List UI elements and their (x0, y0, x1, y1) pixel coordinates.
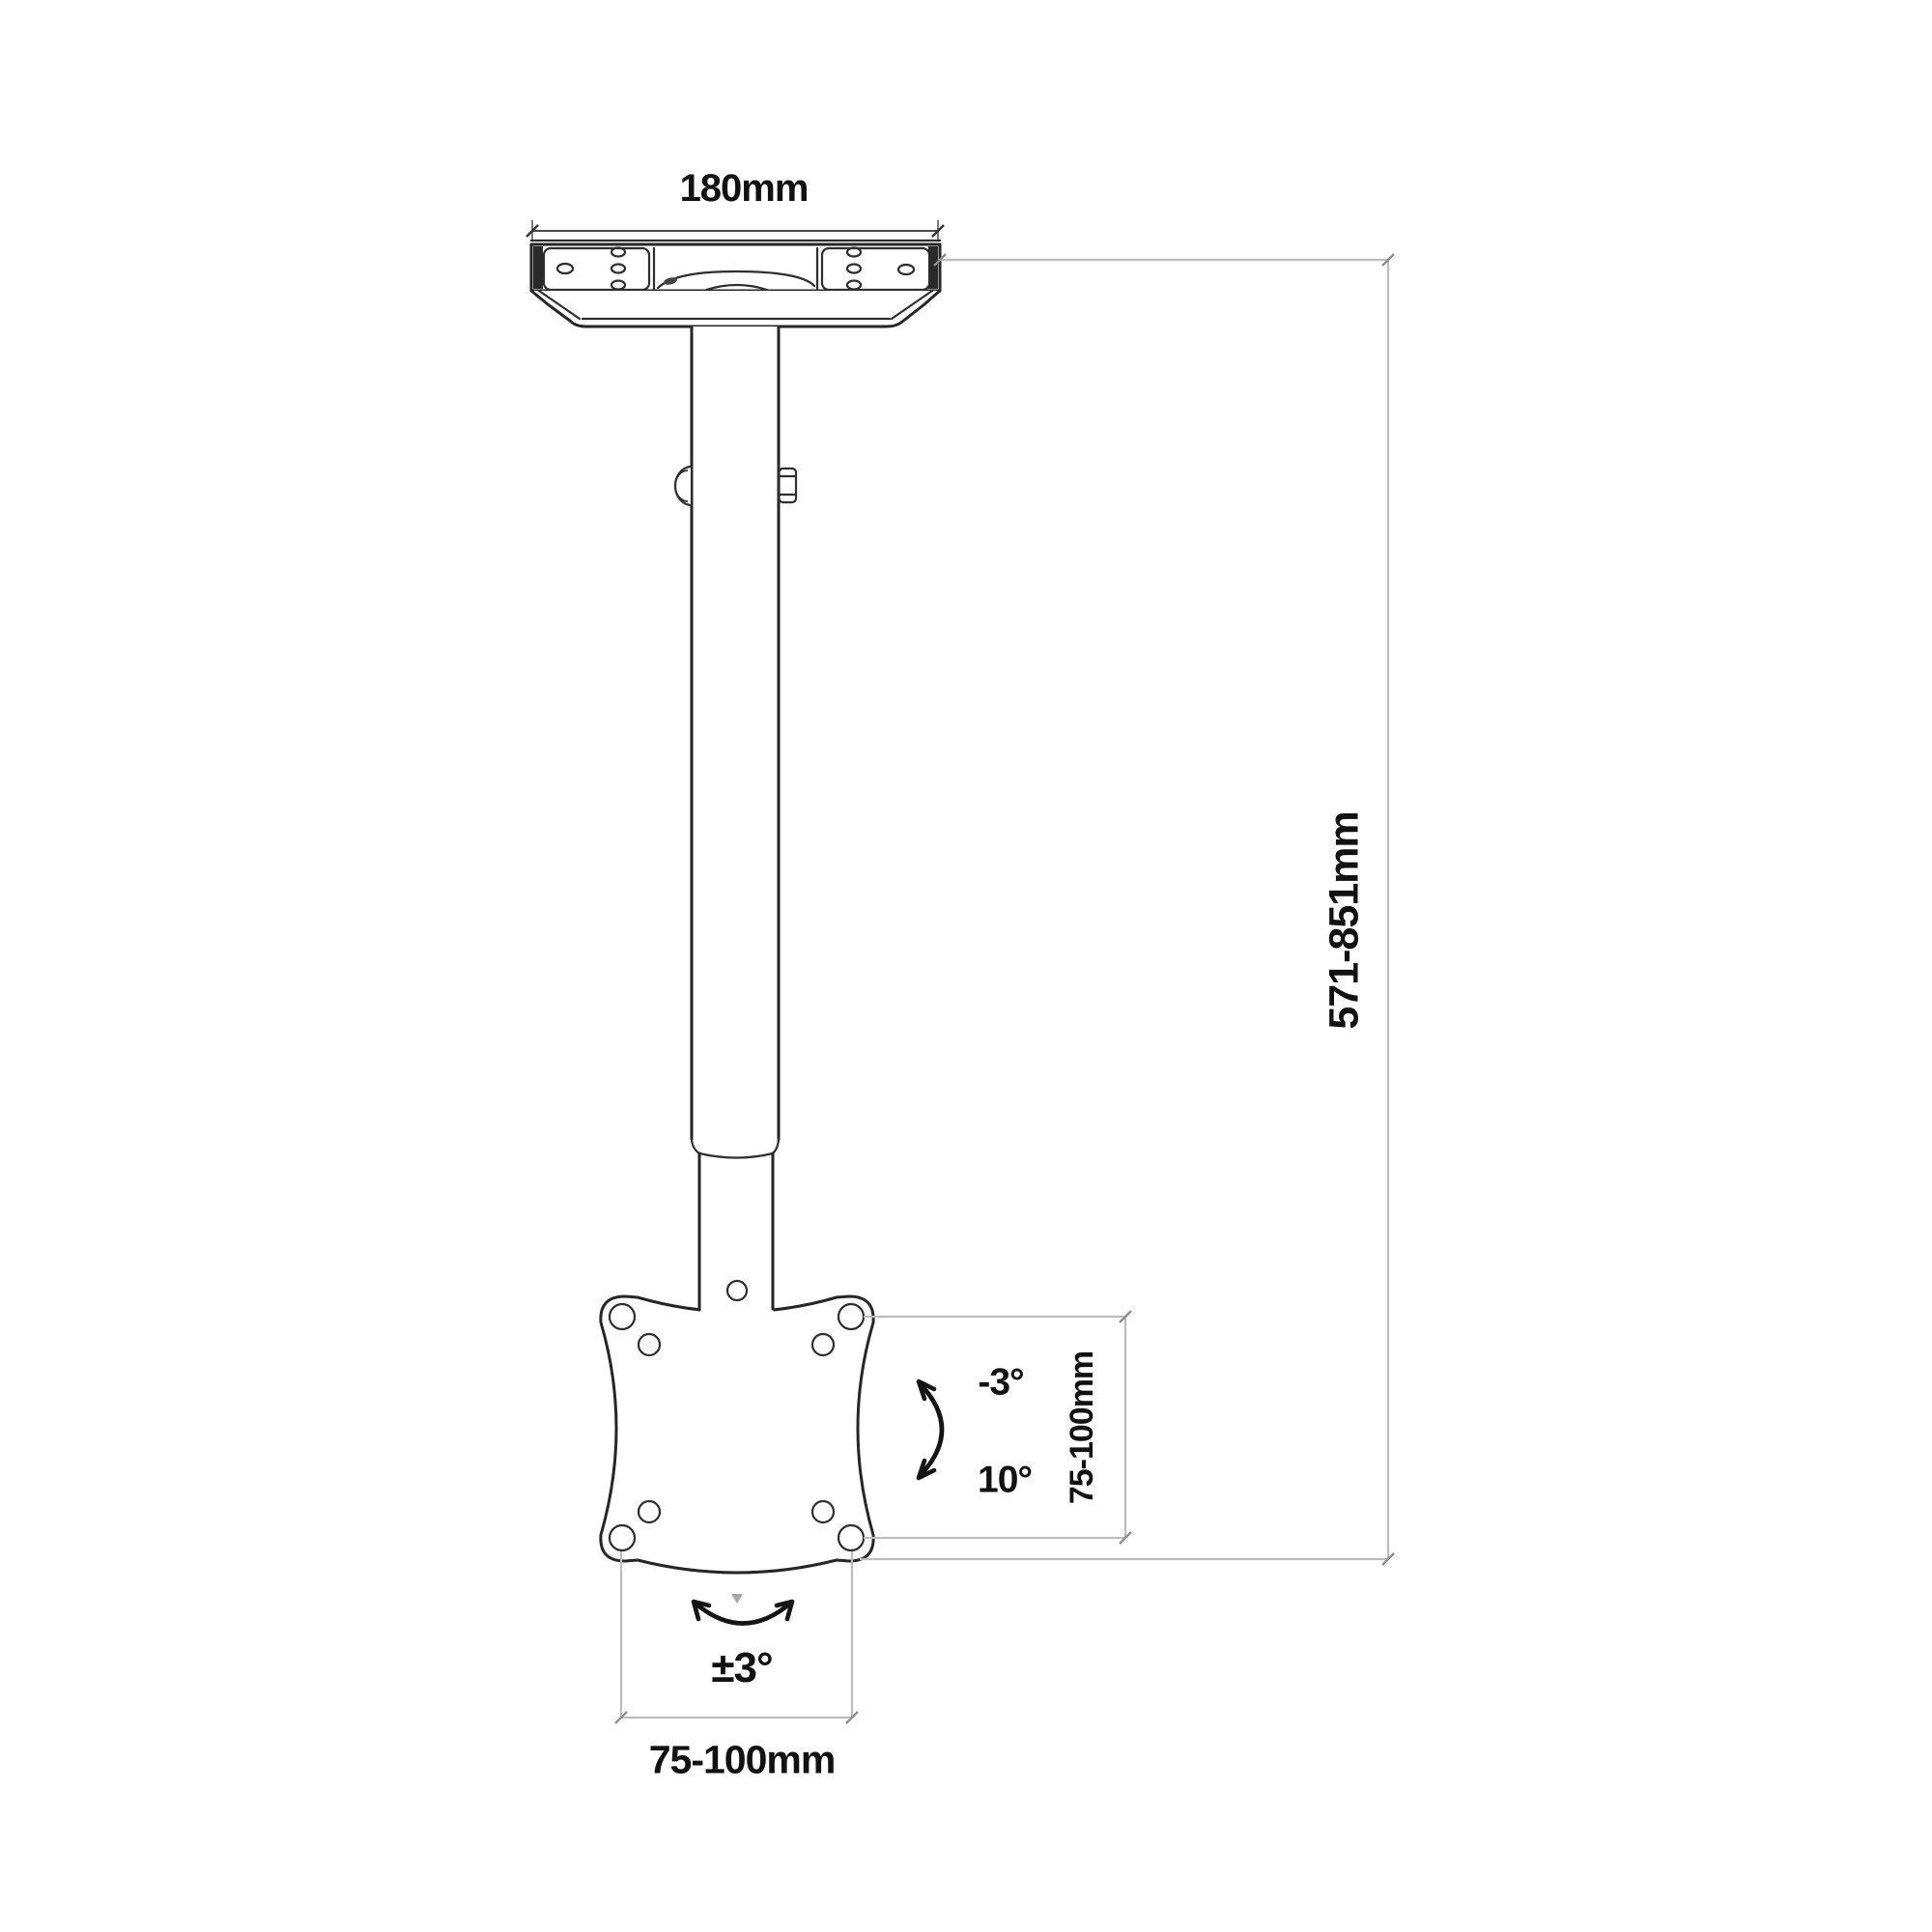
label-tilt-max: 10° (978, 1462, 1032, 1499)
vesa-hole-outer (838, 1304, 864, 1329)
ceiling-mount-drawing (0, 0, 1932, 1932)
vesa-hole-inner (639, 1334, 660, 1355)
mounting-bracket-right (822, 248, 929, 291)
label-vesa-horizontal: 75-100mm (649, 1741, 836, 1780)
vesa-hole-outer (610, 1304, 635, 1329)
vesa-hole-inner (639, 1501, 660, 1522)
tilt-arc-arrow-icon (919, 1381, 942, 1478)
vesa-hole-inner (812, 1334, 834, 1355)
swivel-arc-arrow-icon (694, 1594, 792, 1624)
locking-knob (675, 467, 692, 505)
clamp-bolt (780, 469, 797, 502)
label-plate-width: 180mm (680, 169, 809, 208)
label-swivel-range: ±3° (711, 1647, 772, 1690)
label-tilt-min: -3° (978, 1364, 1023, 1402)
pole-pivot-hole (727, 1281, 747, 1300)
extension-pole (675, 327, 796, 1345)
dim-plate-width (526, 220, 944, 241)
technical-diagram-canvas: 180mm 571-851mm 75-100mm -3° 10° ±3° 75-… (0, 0, 1932, 1932)
label-height-range: 571-851mm (1324, 811, 1366, 1029)
dim-overall-height (860, 254, 1394, 1565)
vesa-hole-inner (812, 1501, 834, 1522)
swivel-center-mark (731, 1594, 743, 1604)
mounting-bracket-left (544, 248, 649, 291)
ceiling-mount-plate (531, 241, 940, 327)
dim-vesa-horizontal (615, 1551, 858, 1723)
vesa-hole-outer (610, 1525, 635, 1550)
label-vesa-vertical: 75-100mm (1065, 1351, 1098, 1504)
vesa-hole-outer (838, 1525, 864, 1550)
plate-skirt (531, 291, 940, 327)
